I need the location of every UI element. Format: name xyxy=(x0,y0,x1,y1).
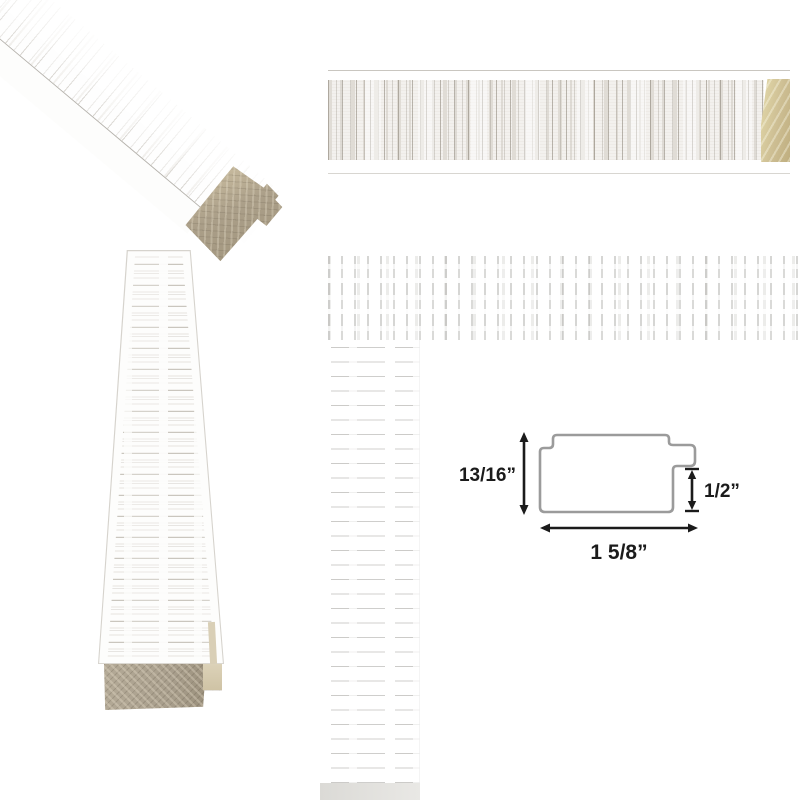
moulding-angled-view xyxy=(0,0,285,266)
profile-outline xyxy=(540,435,695,512)
faded-corner-horizontal-texture xyxy=(328,256,800,340)
height-label: 13/16” xyxy=(459,465,516,486)
moulding-upright-view xyxy=(98,250,224,712)
product-image-canvas: 13/16” 1/2” 1 5/8” xyxy=(0,0,800,800)
rabbet-step xyxy=(203,664,222,690)
faded-corner-vertical-texture xyxy=(327,340,420,783)
dimension-diagram: 13/16” 1/2” 1 5/8” xyxy=(440,415,760,580)
height-dimension xyxy=(520,432,529,515)
raw-wood-cut-end xyxy=(104,664,222,710)
faded-corner-wood-end xyxy=(320,783,420,800)
width-label: 1 5/8” xyxy=(590,541,647,564)
rabbet-label: 1/2” xyxy=(704,481,740,502)
miter-cut-wood-end xyxy=(761,79,790,162)
width-dimension xyxy=(540,524,698,533)
rabbet-dimension xyxy=(685,469,699,511)
barnwood-texture xyxy=(328,80,764,160)
moulding-front-view xyxy=(328,70,790,174)
